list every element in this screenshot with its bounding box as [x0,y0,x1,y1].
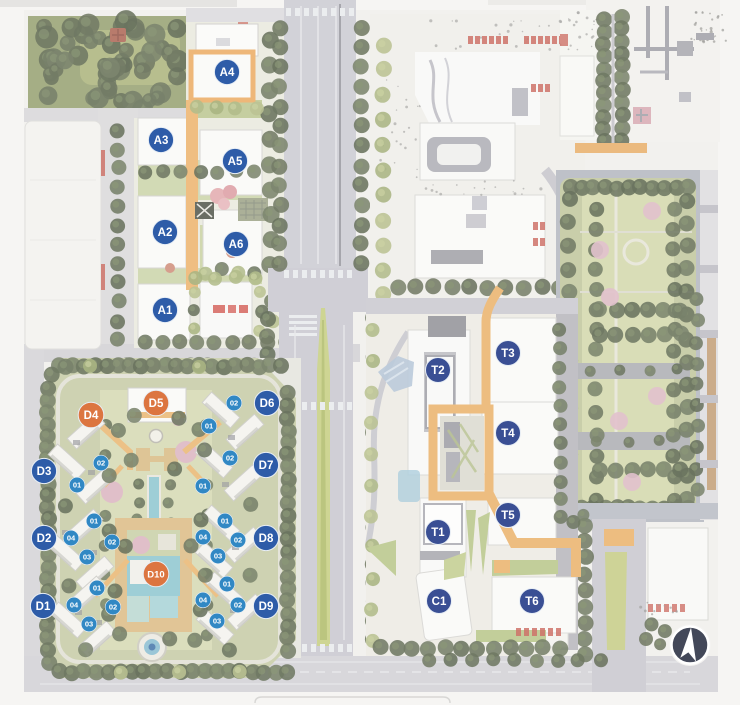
svg-text:02: 02 [108,538,116,547]
svg-text:D3: D3 [37,466,52,478]
svg-text:03: 03 [85,620,93,629]
svg-text:D6: D6 [260,398,275,410]
svg-text:C1: C1 [432,596,447,608]
svg-text:02: 02 [234,601,242,610]
svg-text:D5: D5 [149,398,164,410]
svg-text:03: 03 [213,617,221,626]
svg-text:01: 01 [221,517,229,526]
svg-text:T5: T5 [501,510,515,522]
svg-text:02: 02 [97,459,105,468]
svg-text:04: 04 [199,533,208,542]
svg-text:02: 02 [109,603,117,612]
svg-text:A6: A6 [229,239,244,251]
svg-text:D7: D7 [259,460,274,472]
svg-text:T4: T4 [501,428,515,440]
svg-text:04: 04 [199,596,208,605]
svg-text:02: 02 [234,536,242,545]
svg-text:02: 02 [226,454,234,463]
svg-text:D4: D4 [84,410,99,422]
svg-text:D10: D10 [147,569,164,580]
svg-text:01: 01 [199,482,207,491]
svg-text:01: 01 [73,481,81,490]
svg-text:D2: D2 [37,533,52,545]
svg-text:T6: T6 [525,596,538,608]
svg-text:01: 01 [93,584,101,593]
svg-text:04: 04 [67,534,76,543]
svg-text:01: 01 [90,517,98,526]
svg-text:A3: A3 [154,135,169,147]
svg-text:T2: T2 [431,365,444,377]
svg-text:A4: A4 [220,67,235,79]
svg-text:A1: A1 [158,305,173,317]
svg-text:03: 03 [83,553,91,562]
svg-text:01: 01 [223,580,231,589]
svg-text:A5: A5 [228,156,243,168]
svg-text:03: 03 [214,552,222,561]
svg-text:T1: T1 [431,527,445,539]
svg-text:A2: A2 [158,227,173,239]
svg-text:D1: D1 [36,601,51,613]
svg-text:01: 01 [205,422,213,431]
svg-text:02: 02 [230,399,238,408]
svg-text:D8: D8 [259,533,274,545]
svg-text:04: 04 [70,601,79,610]
svg-text:T3: T3 [501,348,514,360]
svg-text:D9: D9 [259,601,274,613]
